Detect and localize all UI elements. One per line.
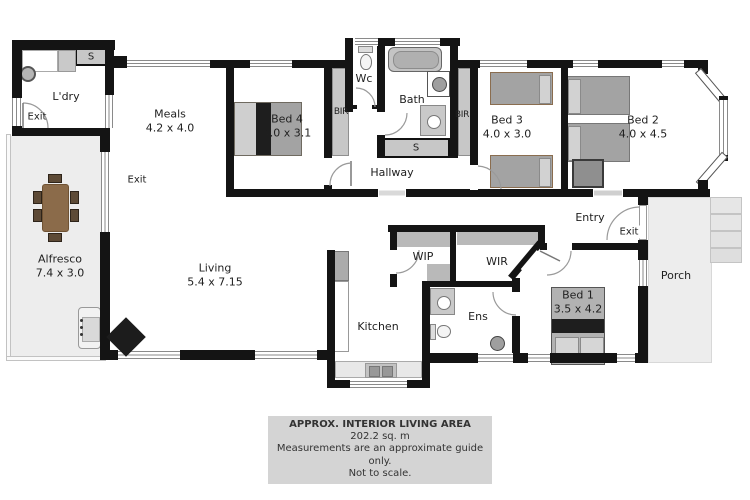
wall-segment — [450, 38, 458, 158]
dining-chair — [48, 233, 62, 242]
wall-segment — [450, 232, 456, 287]
wall-segment — [226, 68, 234, 197]
wall-segment — [180, 350, 255, 360]
ens-vanity — [430, 288, 455, 315]
room-label-hallway: Hallway — [370, 166, 413, 180]
closet-label-s: S — [88, 51, 94, 64]
window — [480, 60, 527, 67]
bed1-blanket — [552, 319, 604, 333]
wall-segment — [638, 240, 648, 260]
wall-segment — [327, 380, 350, 388]
wall-segment — [100, 136, 110, 152]
wall-segment — [638, 286, 648, 363]
bed3-bed — [490, 72, 553, 105]
bath-vanity — [420, 105, 446, 136]
exit-label-entry: Exit — [618, 226, 641, 239]
alfresco-screen-left — [6, 134, 11, 360]
room-label-ldry: L'dry — [52, 90, 79, 104]
sliding-door — [350, 381, 407, 388]
window — [355, 38, 378, 45]
bed4-pillow — [235, 103, 257, 155]
door-arc — [330, 163, 351, 186]
pantry-shelf — [427, 264, 450, 281]
exit-label-laundry: Exit — [28, 111, 47, 124]
dining-table — [42, 184, 69, 232]
porch-step — [710, 248, 742, 263]
bed3-pillow — [539, 158, 551, 187]
window — [639, 260, 647, 286]
wall-segment — [572, 243, 638, 250]
laundry-cabinet — [58, 50, 76, 72]
sink-icon — [437, 296, 451, 310]
wall-segment — [12, 128, 110, 136]
window — [662, 60, 684, 67]
bbq-body — [82, 317, 100, 342]
room-label-entry: Entry — [575, 211, 604, 225]
wall-segment — [377, 46, 385, 112]
toilet-icon — [430, 324, 436, 340]
bay-window — [719, 100, 728, 157]
wall-segment — [210, 60, 250, 68]
wall-segment — [512, 287, 520, 292]
window — [255, 351, 317, 359]
room-label-bath: Bath — [399, 93, 425, 107]
wall-segment — [226, 189, 378, 197]
porch-step — [710, 231, 742, 248]
room-label-meals: Meals4.2 x 4.0 — [146, 108, 195, 137]
alfresco-screen-bottom — [6, 356, 106, 361]
window — [12, 98, 21, 126]
sliding-door — [101, 152, 109, 232]
wall-segment — [324, 60, 332, 158]
wall-segment — [527, 60, 573, 68]
dining-chair — [70, 209, 79, 222]
wall-segment — [108, 56, 127, 68]
room-label-wc: Wc — [356, 72, 373, 86]
caption-line: Measurements are an approximate guide on… — [268, 443, 492, 467]
dining-chair — [33, 191, 42, 204]
closet-label-s2: S — [413, 142, 419, 155]
shower-head — [490, 336, 505, 351]
wall-segment — [550, 353, 617, 363]
room-label-living: Living5.4 x 7.15 — [187, 262, 243, 291]
wall-segment — [470, 190, 478, 197]
bed2-bed — [566, 76, 630, 115]
washing-machine-icon — [20, 66, 36, 82]
bathtub-basin — [393, 51, 439, 69]
caption-line: Not to scale. — [268, 468, 492, 480]
window — [250, 60, 292, 67]
wall-segment — [513, 353, 528, 363]
wall-segment — [430, 353, 478, 363]
room-label-bed3: Bed 34.0 x 3.0 — [483, 114, 532, 143]
room-label-ens: Ens — [468, 310, 488, 324]
wall-segment — [12, 40, 115, 50]
dining-chair — [48, 174, 62, 183]
stove-icon — [365, 363, 397, 378]
door-arc — [493, 292, 516, 315]
wall-segment — [377, 135, 385, 158]
window — [573, 60, 598, 67]
wall-segment — [623, 189, 710, 197]
wall-segment — [478, 189, 593, 197]
wall-segment — [598, 60, 662, 68]
bed2-pillow — [568, 79, 581, 114]
bbq — [78, 307, 101, 349]
window — [127, 60, 210, 67]
wall-segment — [561, 68, 568, 190]
porch-step — [710, 197, 742, 214]
room-label-alfresco: Alfresco7.4 x 3.0 — [36, 253, 85, 282]
door-leaf — [540, 251, 560, 261]
wall-segment — [100, 350, 118, 360]
porch-step — [710, 214, 742, 231]
room-label-kitchen: Kitchen — [357, 320, 398, 334]
bed2-pillow — [568, 126, 581, 161]
wall-segment — [638, 197, 648, 205]
wall-segment — [372, 105, 378, 109]
closet-label-bir-right: BIR — [455, 110, 469, 122]
room-label-bed4: Bed 44.0 x 3.1 — [263, 113, 312, 142]
wall-segment — [12, 40, 22, 98]
floor-plan: L'dry Exit S Meals4.2 x 4.0 Bed 44.0 x 3… — [0, 0, 750, 500]
wall-segment — [512, 316, 520, 353]
wall-segment — [470, 60, 478, 165]
wall-segment — [508, 241, 543, 281]
sink-icon — [427, 115, 441, 129]
wall-segment — [406, 189, 470, 197]
door-arc — [385, 113, 407, 135]
caption-box: APPROX. INTERIOR LIVING AREA 202.2 sq. m… — [268, 416, 492, 484]
dining-chair — [70, 191, 79, 204]
wall-segment — [378, 38, 395, 46]
bed3-pillow — [539, 75, 551, 104]
bed3-bed — [490, 155, 553, 188]
bathtub-icon — [388, 47, 442, 72]
wall-segment — [345, 38, 353, 112]
wall-segment — [292, 60, 345, 68]
toilet-icon — [358, 46, 373, 53]
room-label-wip: WIP — [413, 250, 434, 264]
window — [395, 38, 440, 45]
caption-line: 202.2 sq. m — [268, 431, 492, 443]
wall-segment — [390, 274, 397, 287]
room-label-bed2: Bed 24.0 x 4.5 — [619, 114, 668, 143]
toilet-icon — [437, 325, 451, 338]
room-label-wir: WIR — [486, 255, 508, 269]
toilet-icon — [360, 54, 372, 70]
wall-segment — [352, 105, 357, 109]
room-label-porch: Porch — [661, 269, 691, 283]
wall-segment — [422, 287, 430, 353]
window — [528, 354, 550, 362]
wall-segment — [388, 225, 545, 232]
closet-label-bir-left: BIR — [334, 107, 348, 119]
window — [105, 95, 113, 128]
bed2-dresser — [572, 159, 604, 188]
room-label-bed1: Bed 13.5 x 4.2 — [554, 289, 603, 318]
wall-segment — [422, 353, 430, 388]
door-arc — [547, 251, 571, 275]
pantry-shelf — [395, 232, 450, 247]
window — [617, 354, 635, 362]
dining-chair — [33, 209, 42, 222]
shower-head — [432, 77, 447, 92]
shower-icon — [427, 71, 450, 97]
kitchen-counter — [335, 361, 422, 378]
wall-segment — [327, 250, 335, 362]
caption-line: APPROX. INTERIOR LIVING AREA — [268, 419, 492, 431]
wall-segment — [390, 232, 397, 250]
wall-segment — [422, 281, 518, 287]
robe-shelf — [457, 232, 538, 245]
window — [478, 354, 513, 362]
exit-label-living: Exit — [128, 174, 147, 187]
